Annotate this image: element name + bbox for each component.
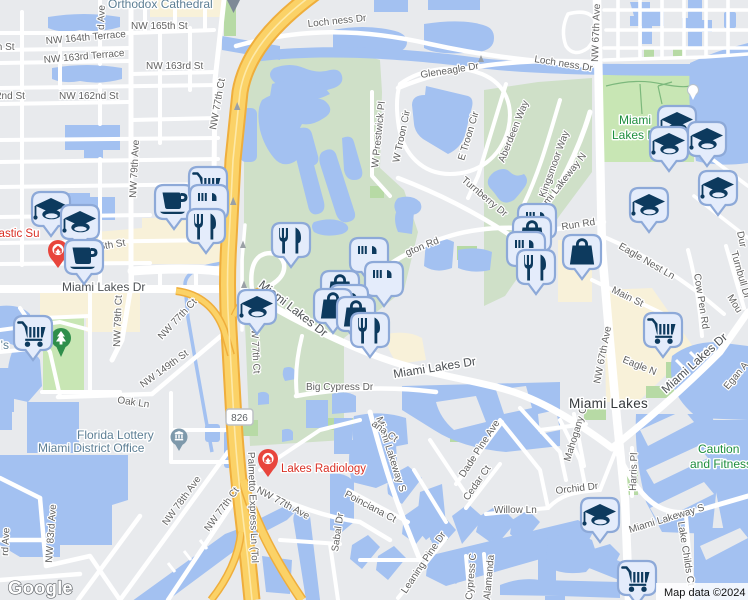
svg-text:Harris Pl: Harris Pl — [628, 452, 640, 491]
svg-text:Google: Google — [8, 577, 73, 598]
svg-text:Lakes P: Lakes P — [612, 128, 655, 142]
svg-text:2nd St: 2nd St — [0, 91, 25, 102]
svg-text:lastic Su: lastic Su — [0, 228, 39, 240]
svg-text:Willow Ln: Willow Ln — [494, 505, 537, 516]
svg-text:Florida Lottery: Florida Lottery — [77, 428, 154, 442]
svg-text:Miami Lakes: Miami Lakes — [569, 396, 648, 411]
svg-text:Orthodox Cathedral: Orthodox Cathedral — [108, 0, 213, 11]
svg-text:th St: th St — [0, 42, 15, 53]
svg-text:rd Ave: rd Ave — [0, 527, 12, 556]
svg-text:n's: n's — [0, 338, 9, 352]
svg-text:Map data ©2024: Map data ©2024 — [664, 587, 746, 599]
svg-text:Miami Lakes Dr: Miami Lakes Dr — [62, 280, 145, 294]
svg-text:NW 165th St: NW 165th St — [131, 21, 188, 32]
svg-text:Miami: Miami — [619, 113, 651, 127]
svg-text:and Fitness: and Fitness — [690, 457, 748, 471]
svg-text:NW 67th Ave: NW 67th Ave — [590, 3, 603, 62]
svg-text:d Ave: d Ave — [96, 4, 108, 30]
svg-text:Caution: Caution — [698, 442, 739, 456]
svg-text:NW 162nd St: NW 162nd St — [59, 91, 119, 102]
svg-text:Miami District Office: Miami District Office — [38, 441, 145, 455]
svg-text:Lakes Radiology: Lakes Radiology — [281, 463, 366, 475]
svg-text:826: 826 — [231, 413, 248, 424]
svg-text:Big Cypress Dr: Big Cypress Dr — [306, 382, 374, 393]
svg-text:NW 163rd St: NW 163rd St — [146, 61, 203, 72]
svg-text:NW 79th Ct: NW 79th Ct — [112, 295, 125, 347]
